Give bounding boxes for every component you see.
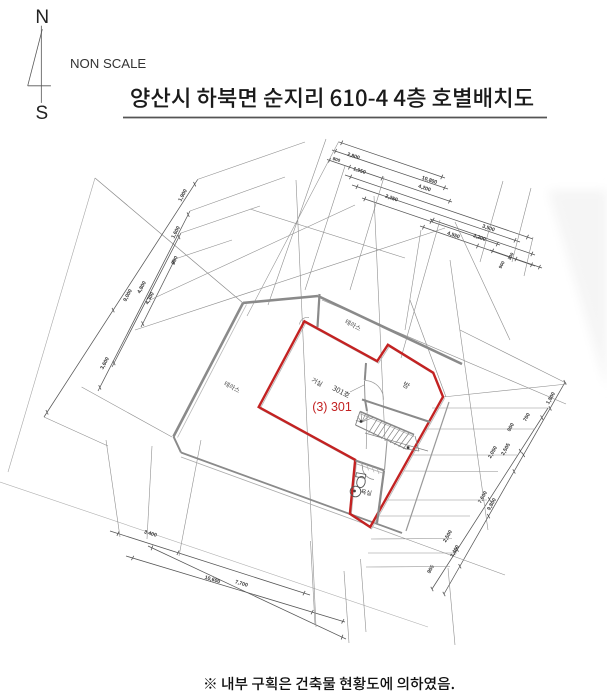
svg-text:NON SCALE: NON SCALE — [70, 56, 146, 71]
svg-text:S: S — [35, 103, 48, 124]
svg-text:(3) 301: (3) 301 — [312, 400, 352, 414]
svg-text:N: N — [35, 7, 49, 28]
